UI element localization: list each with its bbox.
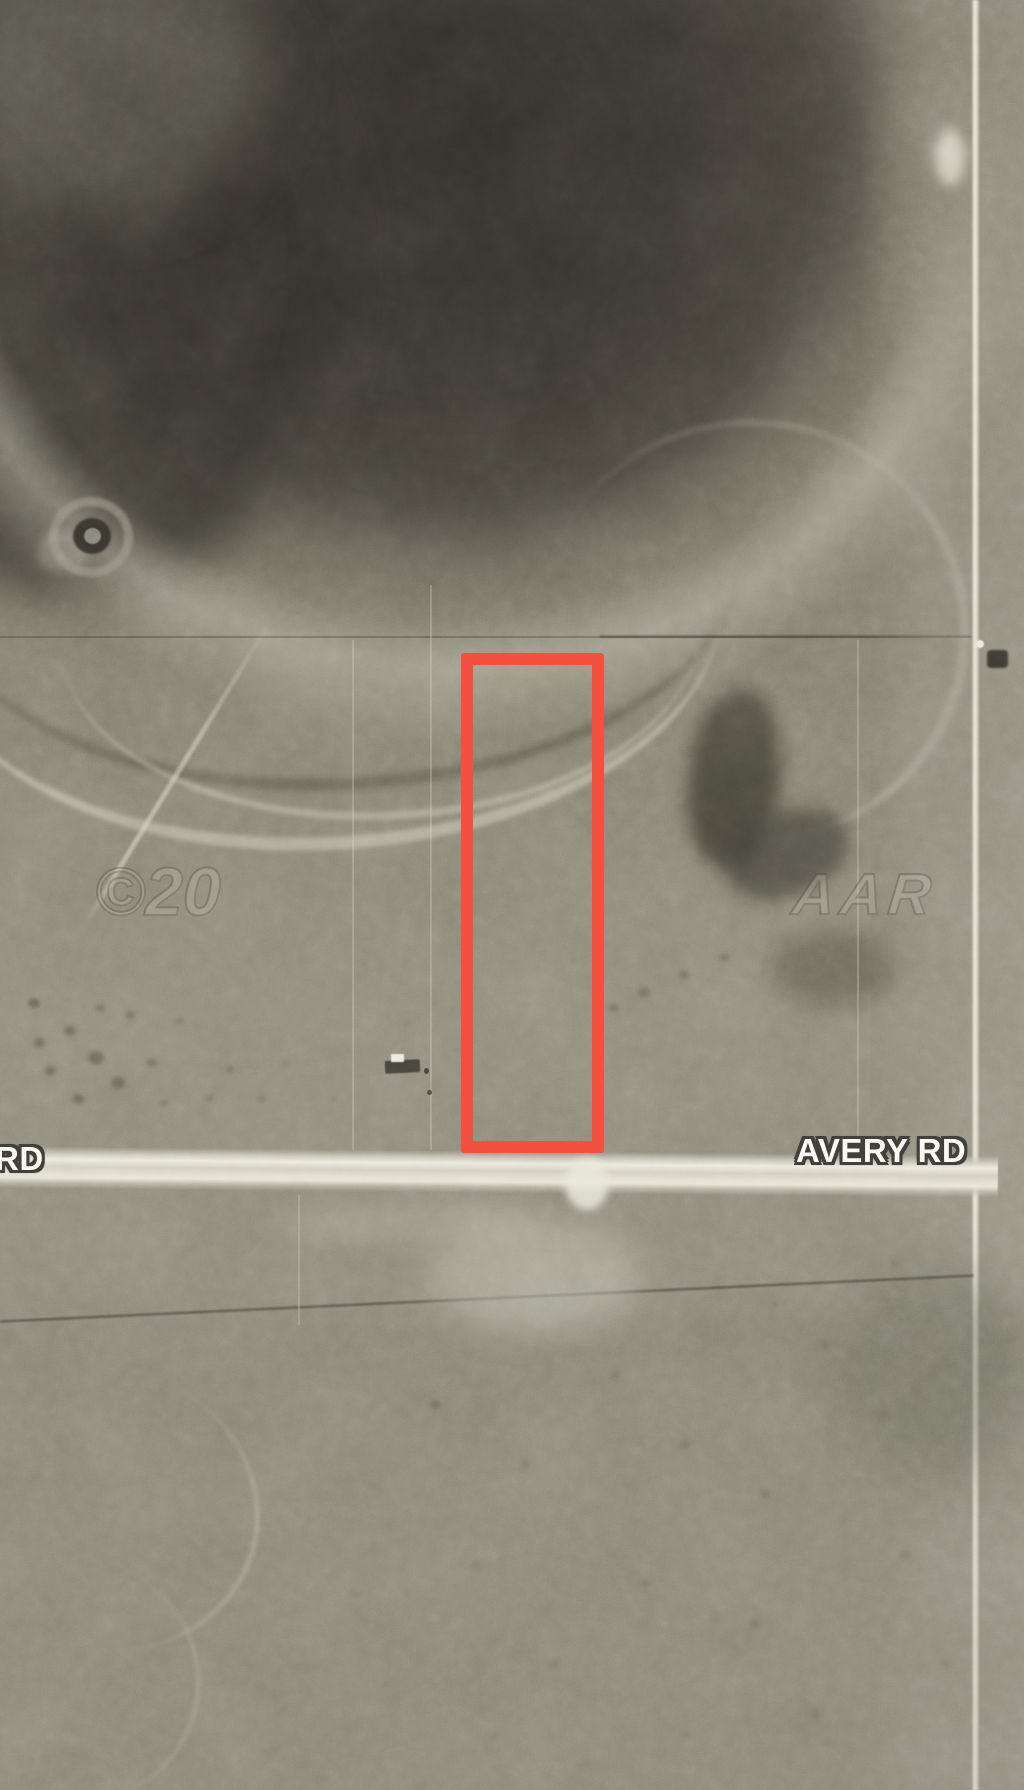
roadside-structure-dark	[987, 650, 1008, 668]
satellite-map: ©20 AAR AVERY RD RD	[0, 0, 1024, 1790]
terrain-blob	[840, 1260, 1024, 1480]
terrain-blob	[935, 128, 965, 186]
building-roof-highlight	[391, 1054, 404, 1062]
terrain-light-patch	[565, 1158, 609, 1210]
stock-tank-core	[84, 528, 101, 544]
vegetation-speckles	[28, 998, 40, 1008]
terrain-speck	[424, 1068, 429, 1074]
road-label-rd: RD	[0, 1140, 44, 1178]
field-boundary-line	[298, 1195, 300, 1325]
vegetation-speckles	[430, 1400, 440, 1409]
roadside-marker-dot	[976, 640, 984, 648]
field-boundary-line	[857, 640, 859, 1152]
road-label-avery: AVERY RD	[796, 1132, 966, 1170]
field-boundary-line	[352, 640, 354, 1150]
terrain-light-patch	[270, 1205, 540, 1241]
terrain-speck	[427, 1090, 432, 1095]
parcel-outline	[461, 653, 604, 1153]
field-boundary-line	[430, 585, 432, 1150]
